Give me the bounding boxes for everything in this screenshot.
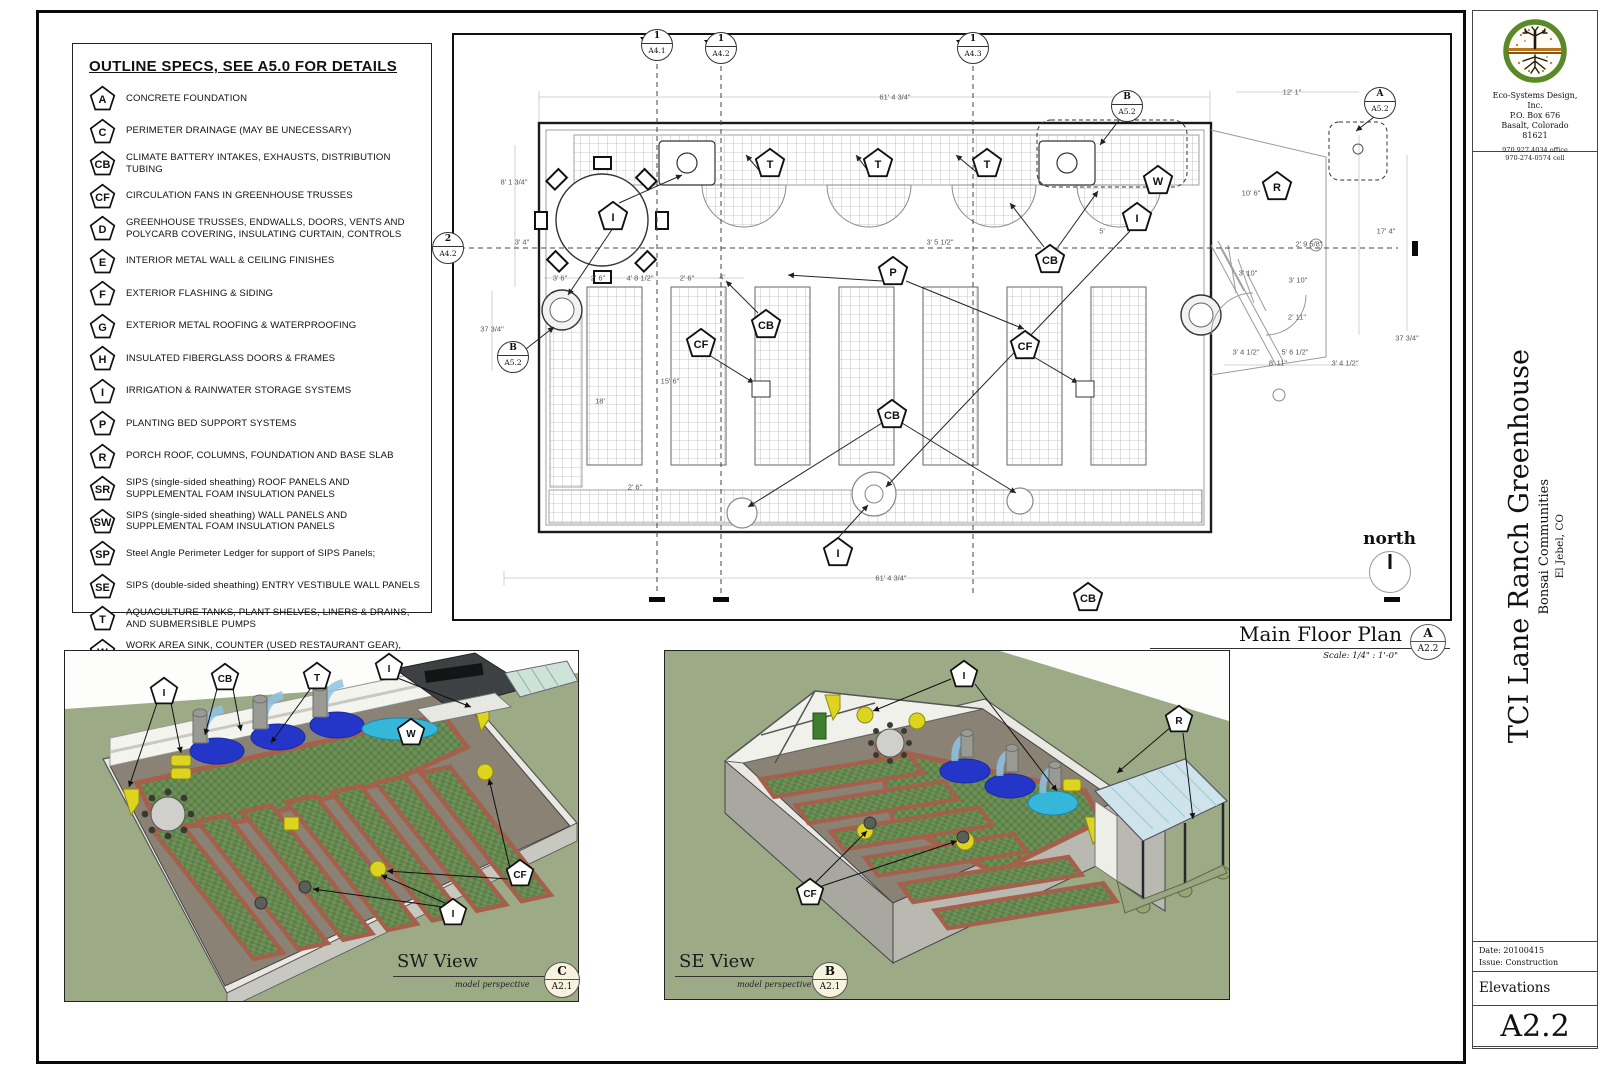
legend-item: SP Steel Angle Perimeter Ledger for supp…	[89, 540, 421, 567]
sheet-issue: Issue: Construction	[1479, 957, 1591, 969]
firm-name-2: Inc.	[1473, 101, 1597, 111]
sheet-name-box: Elevations	[1473, 972, 1597, 1006]
view-marker: T	[302, 661, 332, 691]
dimension-label: 15' 6"	[661, 377, 680, 386]
legend-item: P PLANTING BED SUPPORT SYSTEMS	[89, 410, 421, 437]
section-marker: 1 A4.2	[705, 32, 737, 64]
eco-systems-logo-icon	[1503, 19, 1567, 83]
spec-pentagon-icon: SP	[89, 540, 116, 567]
plan-caption: Main Floor Plan Scale: 1/4" : 1'-0"	[1150, 622, 1450, 661]
north-compass-icon	[1369, 551, 1411, 593]
sw-view-rendering	[65, 651, 578, 1001]
dimension-label: 10' 6"	[1242, 189, 1261, 198]
legend-item: SE SIPS (double-sided sheathing) ENTRY V…	[89, 573, 421, 600]
legend-item-text: AQUACULTURE TANKS, PLANT SHELVES, LINERS…	[126, 607, 421, 630]
se-callout-sheet: A2.1	[813, 980, 847, 995]
view-marker: I	[374, 652, 404, 682]
legend-items: A CONCRETE FOUNDATION C PERIMETER DRAINA…	[89, 85, 421, 665]
legend-item-text: GREENHOUSE TRUSSES, ENDWALLS, DOORS, VEN…	[126, 217, 421, 240]
legend-item-text: EXTERIOR METAL ROOFING & WATERPROOFING	[126, 320, 356, 331]
view-marker: W	[396, 717, 426, 747]
section-marker: B A5.2	[1111, 90, 1143, 122]
firm-name-1: Eco-Systems Design,	[1473, 91, 1597, 101]
project-location: El Jebel, CO	[1554, 514, 1566, 578]
firm-name-address: Eco-Systems Design, Inc. P.O. Box 676 Ba…	[1473, 91, 1597, 141]
plan-marker: I	[1121, 201, 1153, 233]
dimension-label: 2' 9 5/8"	[1295, 240, 1322, 249]
se-view-callout: B A2.1	[812, 962, 848, 998]
dimension-label: 17' 4"	[1377, 227, 1396, 236]
se-view-subtitle: model perspective	[737, 980, 812, 989]
sw-view-panel: I CB T I W	[64, 650, 579, 1002]
spec-pentagon-icon: T	[89, 605, 116, 632]
spec-pentagon-icon: SW	[89, 508, 116, 535]
dimension-label: 2' 6"	[680, 274, 695, 283]
sw-view-title: SW View	[397, 951, 478, 972]
legend-item-text: EXTERIOR FLASHING & SIDING	[126, 288, 273, 299]
plan-marker: I	[822, 536, 854, 568]
dimension-label: 37 3/4"	[1395, 334, 1419, 343]
dimension-label: 5'	[1099, 227, 1105, 236]
legend-item: D GREENHOUSE TRUSSES, ENDWALLS, DOORS, V…	[89, 215, 421, 242]
plan-callout-sheet: A2.2	[1411, 642, 1445, 657]
project-client: Bonsai Communities	[1537, 479, 1552, 615]
project-title: TCI Lane Ranch Greenhouse	[1504, 349, 1535, 743]
legend-title: OUTLINE SPECS, SEE A5.0 FOR DETAILS	[89, 58, 421, 75]
legend-item-text: SIPS (double-sided sheathing) ENTRY VEST…	[126, 580, 420, 591]
dimension-label: 3' 4"	[515, 238, 530, 247]
dimension-label: 18'	[595, 397, 605, 406]
dimension-label: 3' 4 1/2"	[1232, 348, 1259, 357]
legend-item-text: Steel Angle Perimeter Ledger for support…	[126, 548, 375, 559]
spec-pentagon-icon: G	[89, 313, 116, 340]
sw-view-callout: C A2.1	[544, 962, 580, 998]
legend-item-text: CLIMATE BATTERY INTAKES, EXHAUSTS, DISTR…	[126, 152, 421, 175]
view-marker: I	[438, 897, 468, 927]
spec-pentagon-icon: F	[89, 280, 116, 307]
view-marker: R	[1164, 704, 1194, 734]
project-title-box: TCI Lane Ranch Greenhouse Bonsai Communi…	[1473, 152, 1597, 942]
legend-item: SW SIPS (single-sided sheathing) WALL PA…	[89, 508, 421, 535]
plan-marker: CB	[1034, 243, 1066, 275]
legend-item-text: PLANTING BED SUPPORT SYSTEMS	[126, 418, 296, 429]
plan-callout-bubble: A A2.2	[1410, 624, 1446, 660]
sheet-date: Date: 20100415	[1479, 945, 1591, 957]
plan-marker: CB	[1072, 581, 1104, 613]
dimension-label: 2' 6"	[591, 274, 606, 283]
section-marker: 1 A4.1	[641, 29, 673, 61]
dimension-label: 4'	[719, 273, 725, 282]
plan-marker: P	[877, 255, 909, 287]
section-marker: 1 A4.3	[957, 32, 989, 64]
plan-marker: I	[597, 200, 629, 232]
view-marker: CB	[210, 662, 240, 692]
dimension-label: 61' 4 3/4"	[879, 93, 910, 102]
legend-item-text: SIPS (single-sided sheathing) ROOF PANEL…	[126, 477, 421, 500]
main-floor-plan-panel: I T T T W	[452, 33, 1452, 621]
se-callout-letter: B	[813, 963, 847, 980]
spec-pentagon-icon: CB	[89, 150, 116, 177]
dimension-label: 61' 4 3/4"	[875, 574, 906, 583]
legend-item: T AQUACULTURE TANKS, PLANT SHELVES, LINE…	[89, 605, 421, 632]
section-marker: B A5.2	[497, 341, 529, 373]
view-marker: CF	[505, 858, 535, 888]
dimension-label: 37 3/4"	[480, 325, 504, 334]
legend-item: H INSULATED FIBERGLASS DOORS & FRAMES	[89, 345, 421, 372]
plan-marker: CB	[876, 398, 908, 430]
section-marker: 2 A4.2	[432, 232, 464, 264]
outline-specs-legend: OUTLINE SPECS, SEE A5.0 FOR DETAILS A CO…	[72, 43, 432, 613]
dimension-label: 3' 10"	[1289, 276, 1308, 285]
floor-plan-linework	[454, 35, 1450, 619]
firm-address-1: P.O. Box 676	[1473, 111, 1597, 121]
north-arrow: north	[1363, 529, 1416, 593]
dimension-label: 3' 5 1/2"	[926, 238, 953, 247]
firm-logo-box: Eco-Systems Design, Inc. P.O. Box 676 Ba…	[1473, 11, 1597, 152]
dimension-label: 3' 6"	[553, 274, 568, 283]
legend-item-text: SIPS (single-sided sheathing) WALL PANEL…	[126, 510, 421, 533]
legend-item: C PERIMETER DRAINAGE (MAY BE UNECESSARY)	[89, 118, 421, 145]
spec-pentagon-icon: I	[89, 378, 116, 405]
spec-pentagon-icon: SR	[89, 475, 116, 502]
plan-scale: Scale: 1/4" : 1'-0"	[1150, 651, 1450, 661]
spec-pentagon-icon: C	[89, 118, 116, 145]
legend-item: E INTERIOR METAL WALL & CEILING FINISHES	[89, 248, 421, 275]
legend-item: A CONCRETE FOUNDATION	[89, 85, 421, 112]
plan-marker: CB	[750, 308, 782, 340]
dimension-label: 3' 10"	[1239, 269, 1258, 278]
legend-item: SR SIPS (single-sided sheathing) ROOF PA…	[89, 475, 421, 502]
plan-marker: CF	[685, 327, 717, 359]
se-view-panel: I R CF SE View model perspective	[664, 650, 1230, 1000]
legend-item: CB CLIMATE BATTERY INTAKES, EXHAUSTS, DI…	[89, 150, 421, 177]
section-marker: A A5.2	[1364, 87, 1396, 119]
plan-marker: R	[1261, 170, 1293, 202]
dimension-label: 12' 1"	[1283, 88, 1302, 97]
north-label: north	[1363, 529, 1416, 549]
plan-marker: T	[971, 147, 1003, 179]
firm-address-2: Basalt, Colorado	[1473, 121, 1597, 131]
view-marker: I	[149, 676, 179, 706]
dimension-label: 3' 4 1/2"	[1331, 359, 1358, 368]
legend-item-text: INTERIOR METAL WALL & CEILING FINISHES	[126, 255, 334, 266]
sheet-number-box: A2.2	[1473, 1006, 1597, 1047]
legend-item: CF CIRCULATION FANS IN GREENHOUSE TRUSSE…	[89, 183, 421, 210]
plan-marker: CF	[1009, 329, 1041, 361]
sheet-name: Elevations	[1479, 980, 1591, 996]
drawing-sheet: OUTLINE SPECS, SEE A5.0 FOR DETAILS A CO…	[0, 0, 1600, 1067]
legend-item-text: PERIMETER DRAINAGE (MAY BE UNECESSARY)	[126, 125, 352, 136]
sw-view-underline	[393, 976, 559, 977]
legend-item-text: CIRCULATION FANS IN GREENHOUSE TRUSSES	[126, 190, 353, 201]
legend-item: I IRRIGATION & RAINWATER STORAGE SYSTEMS	[89, 378, 421, 405]
spec-pentagon-icon: A	[89, 85, 116, 112]
view-marker: I	[949, 659, 979, 689]
legend-item-text: IRRIGATION & RAINWATER STORAGE SYSTEMS	[126, 385, 351, 396]
legend-item-text: CONCRETE FOUNDATION	[126, 93, 247, 104]
dimension-label: 2' 6"	[628, 483, 643, 492]
plan-title: Main Floor Plan	[1150, 622, 1450, 649]
plan-marker: T	[754, 147, 786, 179]
dimension-label: 4' 8 1/2"	[626, 274, 653, 283]
title-block: Eco-Systems Design, Inc. P.O. Box 676 Ba…	[1472, 10, 1598, 1049]
spec-pentagon-icon: SE	[89, 573, 116, 600]
date-issue-box: Date: 20100415 Issue: Construction	[1473, 942, 1597, 972]
dimension-label: 8' 11"	[1269, 359, 1287, 368]
sheet-number: A2.2	[1473, 1006, 1597, 1047]
spec-pentagon-icon: R	[89, 443, 116, 470]
legend-item-text: PORCH ROOF, COLUMNS, FOUNDATION AND BASE…	[126, 450, 394, 461]
dimension-label: 2' 11"	[1288, 313, 1306, 322]
plan-callout-letter: A	[1411, 625, 1445, 642]
legend-item-text: INSULATED FIBERGLASS DOORS & FRAMES	[126, 353, 335, 364]
plan-marker: T	[862, 147, 894, 179]
sw-callout-letter: C	[545, 963, 579, 980]
legend-item: R PORCH ROOF, COLUMNS, FOUNDATION AND BA…	[89, 443, 421, 470]
spec-pentagon-icon: CF	[89, 183, 116, 210]
firm-address-3: 81621	[1473, 131, 1597, 141]
plan-marker: W	[1142, 164, 1174, 196]
view-marker: CF	[795, 877, 825, 907]
se-view-underline	[675, 976, 827, 977]
spec-pentagon-icon: H	[89, 345, 116, 372]
dimension-label: 8' 1 3/4"	[500, 178, 527, 187]
spec-pentagon-icon: E	[89, 248, 116, 275]
sw-callout-sheet: A2.1	[545, 980, 579, 995]
legend-item: G EXTERIOR METAL ROOFING & WATERPROOFING	[89, 313, 421, 340]
sw-view-subtitle: model perspective	[455, 980, 530, 989]
spec-pentagon-icon: D	[89, 215, 116, 242]
legend-item: F EXTERIOR FLASHING & SIDING	[89, 280, 421, 307]
se-view-title: SE View	[679, 951, 755, 972]
spec-pentagon-icon: P	[89, 410, 116, 437]
dimension-label: 5' 6 1/2"	[1281, 348, 1308, 357]
se-view-rendering	[665, 651, 1229, 999]
